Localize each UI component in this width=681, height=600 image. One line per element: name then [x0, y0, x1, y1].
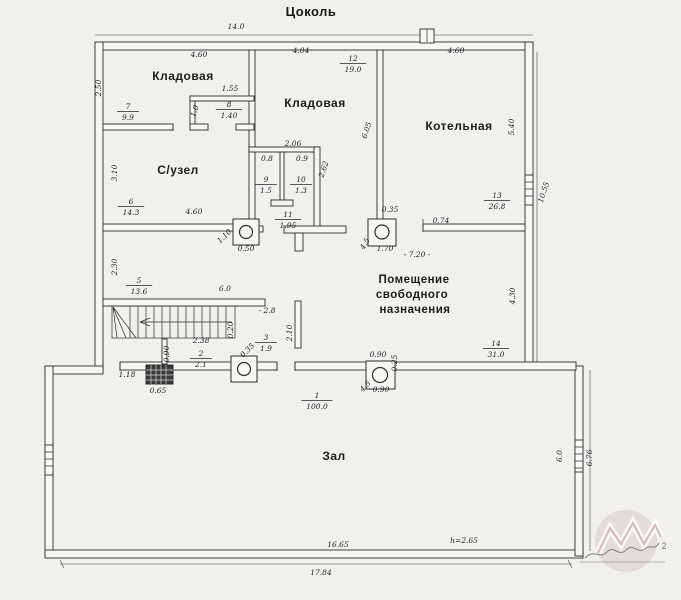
room-number: 14: [491, 339, 501, 348]
room-area: 100.0: [306, 402, 328, 411]
room-number: 3: [264, 333, 269, 342]
dimension-label: 16.65: [327, 540, 349, 549]
dimension-label: 0.90: [162, 345, 171, 362]
room-area: 14.3: [123, 208, 140, 217]
dimension-label: 17.84: [310, 568, 332, 577]
room-area: 19.0: [345, 65, 362, 74]
room-pomeshenie-3: назначения: [379, 304, 450, 316]
window-right-lower: [575, 440, 583, 472]
ventilation-shaft: [146, 365, 173, 384]
dimension-label: 0.9: [296, 154, 308, 163]
dimension-label: 6.76: [585, 449, 594, 466]
room-area: 26.8: [488, 202, 506, 211]
dimension-label: 2.38: [192, 336, 210, 345]
floor-plan-page: 2 ЦокольКладоваяКладоваяКотельнаяС/узелП…: [0, 0, 681, 600]
room-number: 1: [315, 391, 320, 400]
dimension-label: 0.25: [390, 354, 399, 371]
room-pomeshenie-1: Помещение: [378, 274, 449, 286]
dimension-label: 2.06: [284, 139, 302, 148]
dimension-label: 4.60: [185, 207, 203, 216]
room-number: 12: [348, 54, 358, 63]
room-kotelnaya: Котельная: [425, 119, 492, 133]
room-number: 11: [283, 210, 293, 219]
room-zal: Зал: [322, 449, 345, 463]
dimension-label: 2.10: [285, 324, 294, 342]
room-number: 2: [198, 349, 204, 358]
flue-kotelnaya: [368, 219, 396, 246]
watermark-superscript: 2: [661, 541, 666, 551]
dimension-label: 0.90: [370, 350, 387, 359]
dimension-label: 0.8: [261, 154, 273, 163]
dimension-label: 1.70: [377, 244, 394, 253]
dimension-label: 1.55: [222, 84, 239, 93]
flue-room2: [231, 356, 257, 382]
room-area: 1.40: [221, 111, 238, 120]
room-pomeshenie-2: свободного: [376, 289, 448, 301]
dimension-label: 6.0: [219, 284, 231, 293]
room-number: 5: [137, 276, 142, 285]
room-area: 1.3: [295, 186, 307, 195]
dimension-label: 0.74: [433, 216, 450, 225]
room-kladovaya-left: Кладовая: [152, 69, 213, 83]
dimension-label: 14.0: [228, 22, 245, 31]
room-area: 9.9: [122, 113, 134, 122]
dimension-label: h=2.65: [450, 536, 478, 545]
dimension-label: 2.30: [110, 258, 119, 276]
dimension-label: 2.50: [94, 79, 103, 97]
room-number: 9: [264, 175, 269, 184]
dimension-label: 0.35: [382, 205, 399, 214]
dimension-label: 1.18: [119, 370, 136, 379]
dimension-label: 4.30: [508, 287, 517, 305]
dimension-label: 0.65: [150, 386, 167, 395]
dimension-label: 4.04: [292, 46, 310, 55]
room-suzel: С/узел: [157, 163, 199, 177]
room-area: 2.1: [194, 360, 207, 369]
dimension-label: 0.90: [373, 385, 390, 394]
dimension-label: 4.60: [190, 50, 208, 59]
dimension-label: 0.20: [226, 321, 235, 338]
window-left: [45, 445, 53, 475]
dimension-label: 3.10: [110, 164, 119, 181]
dimension-label: 0.50: [238, 244, 255, 253]
dimension-label: 5.40: [507, 118, 516, 135]
dimension-label: 4.60: [447, 46, 465, 55]
room-number: 13: [492, 191, 502, 200]
window-right-upper: [525, 175, 533, 205]
flue-suzel: [233, 219, 259, 245]
room-kladovaya-center: Кладовая: [284, 96, 345, 110]
room-number: 7: [126, 102, 131, 111]
room-number: 8: [227, 100, 232, 109]
room-area: 1.9: [260, 344, 272, 353]
room-area: 13.6: [131, 287, 148, 296]
dimension-label: - 7.20 -: [404, 250, 431, 259]
floor-plan-drawing: 2 ЦокольКладоваяКладоваяКотельнаяС/узелП…: [0, 0, 681, 600]
room-number: 10: [296, 175, 306, 184]
floor-title: Цоколь: [286, 4, 337, 19]
room-area: 1.95: [280, 221, 297, 230]
dimension-label: - 2.8: [259, 306, 276, 315]
room-number: 6: [129, 197, 134, 206]
dimension-label: 6.0: [555, 450, 564, 462]
room-area: 1.5: [260, 186, 272, 195]
room-area: 31.0: [488, 350, 505, 359]
